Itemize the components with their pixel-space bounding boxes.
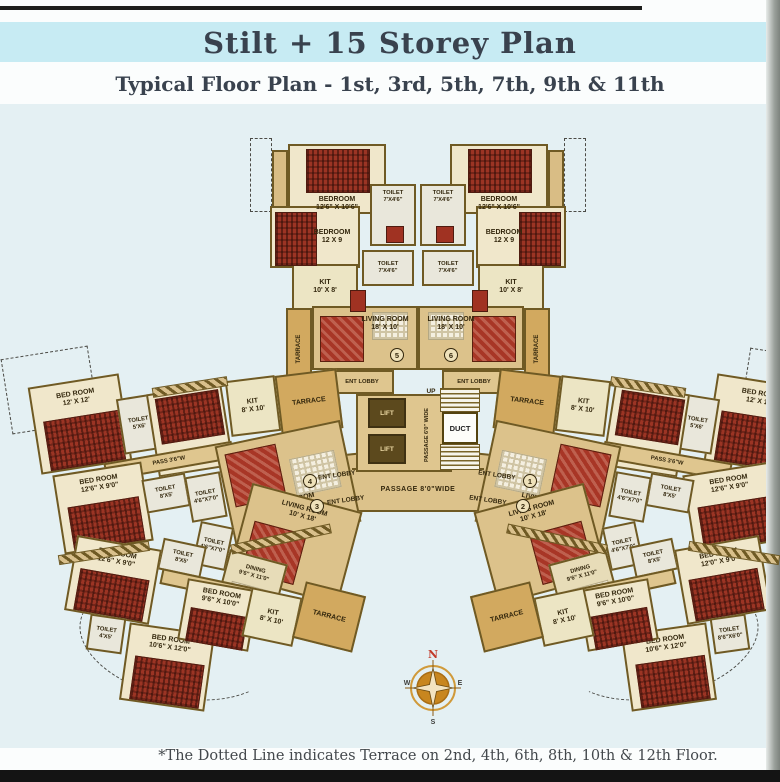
- unit-number-1: 1: [523, 474, 537, 488]
- bed: [155, 389, 225, 444]
- room-label: BEDROOM 12'6" X 10'6": [316, 196, 358, 212]
- compass-rose: N W E S: [402, 646, 464, 726]
- top-rule: [0, 6, 642, 10]
- room-label: KIT 8' X 10': [570, 397, 595, 416]
- up-label: UP: [420, 388, 442, 395]
- room-label: TOILET 8'X5': [643, 549, 666, 566]
- room-label: BED ROOM 12'6" X 9'0": [79, 473, 120, 495]
- room-label: BEDROOM 12'6" X 10'6": [478, 196, 520, 212]
- bed: [73, 568, 149, 622]
- passage-vertical-label: PASSAGE 6'0" WIDE: [424, 395, 430, 475]
- room-label: BED ROOM 12' X 12': [56, 387, 97, 409]
- room-label: LIVING ROOM 18' X 10': [361, 316, 408, 332]
- room-label: ENT LOBBY: [345, 379, 379, 386]
- bed: [275, 212, 317, 266]
- ent-lobby-unit5: ENT LOBBY: [330, 370, 394, 394]
- balcony-strip: [272, 150, 288, 208]
- balcony-strip: [548, 150, 564, 208]
- room-toilet-common-unit5: TOILET 7'X4'6": [362, 250, 414, 286]
- room-label: PASS 3'6"W: [650, 455, 684, 467]
- room-label: TARRACE: [292, 396, 326, 408]
- room-toilet-8x5-flat1: TOILET 8'X5': [645, 472, 694, 513]
- room-label: TOILET 5'X6': [686, 416, 708, 432]
- brochure-page: Stilt + 15 Storey Plan Typical Floor Pla…: [0, 0, 780, 782]
- bed: [468, 149, 532, 193]
- lift-1: LIFT: [368, 398, 406, 428]
- room-bedroom2-unit6: BEDROOM 12 X 9: [476, 206, 566, 268]
- page-subtitle: Typical Floor Plan - 1st, 3rd, 5th, 7th,…: [0, 72, 780, 96]
- room-bedroom2-unit5: BEDROOM 12 X 9: [270, 206, 360, 268]
- page-edge-shadow: [766, 0, 780, 782]
- room-label: KIT 8' X 10': [240, 397, 265, 416]
- terrace-label-unit6: TARRACE: [534, 309, 540, 389]
- room-label: DINING 9'6" X 11'0": [238, 563, 272, 584]
- compass-west-label: W: [404, 680, 411, 687]
- room-label: TOILET 7'X4'6": [433, 190, 454, 203]
- room-label: KIT 8' X 10': [259, 607, 285, 628]
- room-label: BED ROOM 9'6" X 10'0": [201, 587, 242, 610]
- room-label: TOILET 7'X4'6": [438, 261, 459, 274]
- room-toilet-common-unit6: TOILET 7'X4'6": [422, 250, 474, 286]
- staircase-upper: [440, 388, 480, 412]
- room-label: BED ROOM 9'6" X 10'0": [595, 587, 636, 610]
- room-label: BEDROOM 12 X 9: [314, 229, 351, 245]
- room-label: TOILET 4'6"X7'0": [617, 488, 644, 505]
- room-label: TOILET 5'X6': [128, 416, 150, 432]
- room-kitchen-unit5: KIT 10' X 8': [292, 264, 358, 310]
- room-living-unit6: LIVING ROOM 18' X 10': [418, 306, 524, 370]
- room-label: TOILET 7'X4'6": [378, 261, 399, 274]
- rug: [320, 316, 364, 362]
- terrace-label-unit5: TARRACE: [296, 309, 302, 389]
- bed: [635, 655, 710, 708]
- room-label: LIVING ROOM 18' X 10': [427, 316, 474, 332]
- room-toilet-86x60-flat2: TOILET 8'6"X6'0": [710, 614, 751, 655]
- compass-north-label: N: [428, 648, 438, 661]
- room-kitchen-flat4: KIT 8' X 10': [225, 375, 281, 437]
- dashed-terrace-outline: [564, 138, 586, 212]
- room-label: ENT LOBBY: [457, 379, 491, 386]
- room-label: TOILET 8'X5': [171, 549, 194, 566]
- appliance: [350, 290, 366, 312]
- compass-south-label: S: [431, 719, 436, 726]
- duct: DUCT: [442, 412, 478, 444]
- bed: [129, 655, 204, 708]
- room-label: KIT 8' X 10': [551, 607, 577, 628]
- washbasin: [386, 226, 404, 243]
- room-label: TOILET 8'X5': [155, 485, 178, 502]
- compass-east-label: E: [458, 680, 463, 687]
- unit-number-2: 2: [516, 499, 530, 513]
- passage-arc-label: PASSAGE 8'0"WIDE: [358, 486, 478, 493]
- room-label: TARRACE: [510, 396, 544, 408]
- room-label: BED ROOM 12'6" X 9'0": [709, 473, 750, 495]
- room-label: TOILET 8'6"X6'0": [717, 626, 744, 643]
- room-label: TOILET 7'X4'6": [383, 190, 404, 203]
- unit-number-4: 4: [303, 474, 317, 488]
- bed: [519, 212, 561, 266]
- compass-star: [413, 668, 453, 708]
- rug: [472, 316, 516, 362]
- unit-number-6: 6: [444, 348, 458, 362]
- bed: [306, 149, 370, 193]
- room-label: TOILET 8'X5': [659, 485, 682, 502]
- room-label: TOILET 4'6"X7'0": [193, 488, 220, 505]
- room-label: PASS 3'6"W: [152, 455, 186, 467]
- terrace-footnote: *The Dotted Line indicates Terrace on 2n…: [110, 748, 766, 764]
- unit-number-3: 3: [310, 499, 324, 513]
- room-label: TARRACE: [490, 609, 525, 625]
- lift-2: LIFT: [368, 434, 406, 464]
- room-label: TOILET 4'X5': [95, 626, 117, 642]
- room-label: KIT 10' X 8': [313, 279, 337, 295]
- room-kitchen-flat1: KIT 8' X 10': [555, 375, 611, 437]
- page-title: Stilt + 15 Storey Plan: [0, 26, 780, 60]
- dashed-terrace-outline: [250, 138, 272, 212]
- room-living-unit5: LIVING ROOM 18' X 10': [312, 306, 418, 370]
- bed: [615, 390, 685, 445]
- room-label: TARRACE: [312, 609, 347, 625]
- bottom-bar: [0, 770, 780, 782]
- room-label: DINING 9'6" X 11'0": [565, 563, 599, 584]
- staircase-lower: [440, 444, 480, 470]
- room-bedroom-12x12-flat4: BED ROOM 12' X 12': [28, 373, 133, 474]
- room-label: BEDROOM 12 X 9: [486, 229, 523, 245]
- room-label: KIT 10' X 8': [499, 279, 523, 295]
- room-toilet-unit6: TOILET 7'X4'6": [420, 184, 466, 246]
- unit-number-5: 5: [390, 348, 404, 362]
- room-toilet-4x5-flat3: TOILET 4'X5': [86, 614, 127, 655]
- room-toilet-unit5: TOILET 7'X4'6": [370, 184, 416, 246]
- washbasin: [436, 226, 454, 243]
- appliance: [472, 290, 488, 312]
